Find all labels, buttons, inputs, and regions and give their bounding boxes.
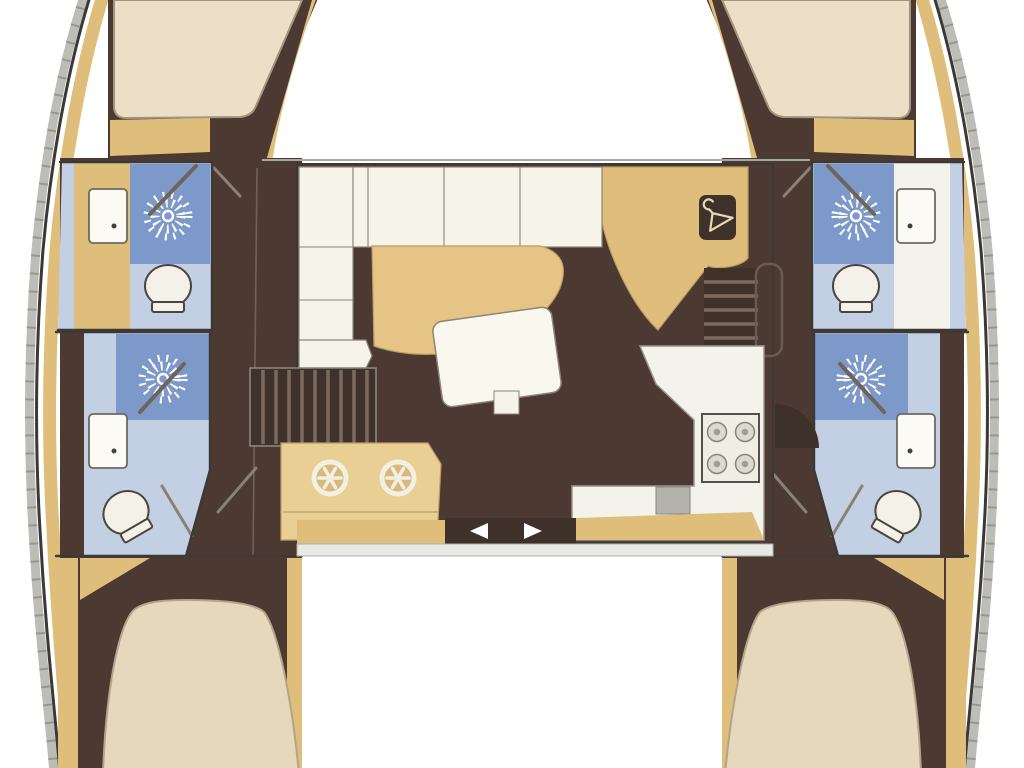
port-aft-shower: [116, 334, 210, 420]
round-sink-icon: [314, 462, 346, 494]
round-sink-icon: [382, 462, 414, 494]
starboard-forward-berth-shelf: [814, 118, 914, 156]
starboard-aft-berth: [725, 600, 921, 768]
starboard-aft-wall-strip: [946, 558, 966, 768]
port-forward-shower: [130, 164, 210, 264]
sink-icon: [89, 189, 127, 243]
port-companionway-steps: [250, 368, 376, 446]
salon: [250, 160, 819, 556]
stove-burner-icon: [736, 423, 755, 442]
salon-sofa-side: [299, 167, 353, 347]
stove-burner-icon: [736, 455, 755, 474]
stove-burner-icon: [708, 423, 727, 442]
stove-burner-icon: [708, 455, 727, 474]
salon-table-stool: [494, 391, 519, 414]
port-aft-wall-strip: [58, 558, 78, 768]
toilet-icon: [833, 265, 879, 312]
sink-icon: [89, 414, 127, 468]
galley-sink: [656, 487, 690, 514]
floorplan-svg: [0, 0, 1024, 768]
sink-icon: [897, 189, 935, 243]
catamaran-floorplan: [0, 0, 1024, 768]
port-aft-berth: [103, 600, 299, 768]
toilet-icon: [145, 265, 191, 312]
salon-door-track: [297, 544, 773, 556]
port-companionway: [250, 368, 376, 446]
port-forward-bathroom: [58, 162, 212, 330]
salon-sofa-foot: [299, 340, 372, 368]
sliding-door: [445, 518, 576, 544]
salon-aft-sill-port: [297, 520, 445, 544]
port-forward-berth-shelf: [110, 118, 210, 156]
starboard-forward-shower: [814, 164, 894, 264]
starboard-forward-vanity: [894, 163, 950, 330]
starboard-aft-shower: [814, 334, 908, 420]
starboard-forward-bathroom: [812, 162, 966, 330]
sink-icon: [897, 414, 935, 468]
port-forward-vanity: [74, 163, 130, 330]
